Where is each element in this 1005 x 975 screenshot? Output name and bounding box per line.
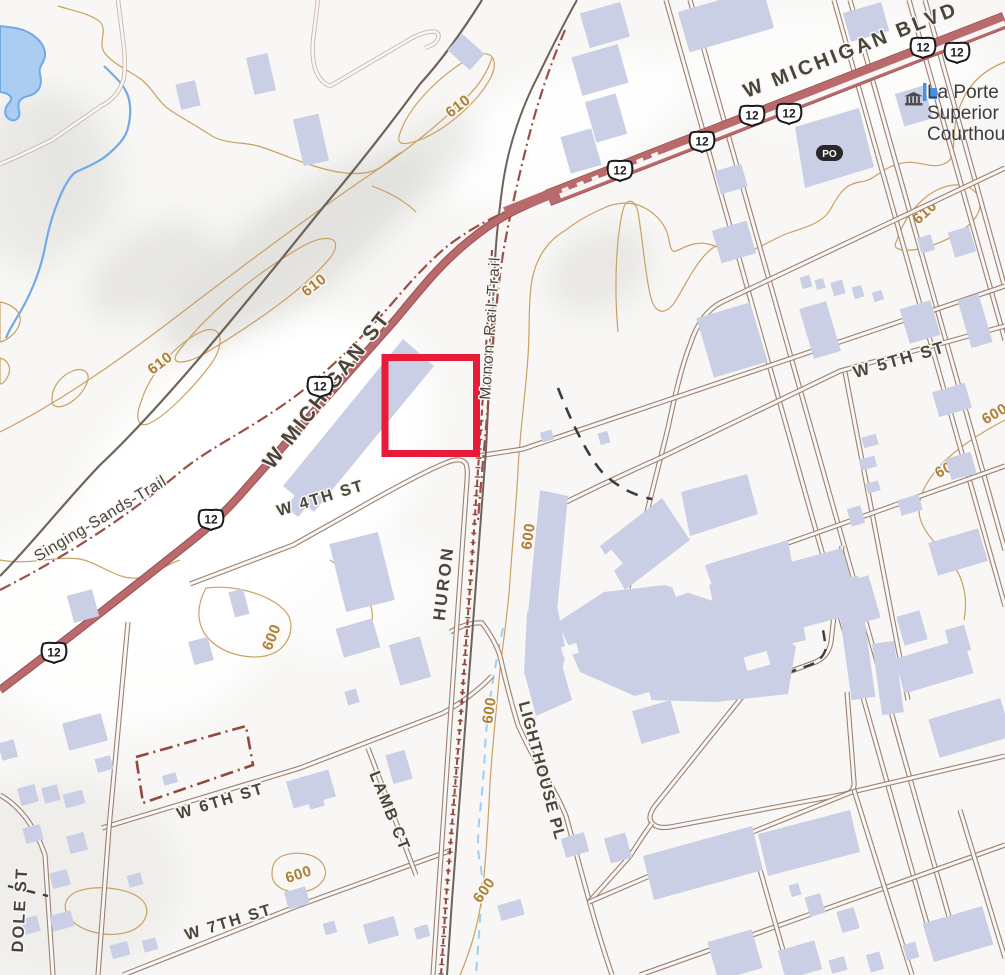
- svg-text:12: 12: [313, 380, 327, 394]
- svg-text:La Porte: La Porte: [927, 82, 999, 103]
- svg-text:12: 12: [916, 41, 930, 55]
- svg-text:Courthou: Courthou: [927, 124, 1005, 145]
- svg-text:Superior: Superior: [927, 103, 999, 124]
- svg-text:12: 12: [204, 513, 218, 527]
- svg-text:12: 12: [47, 646, 61, 660]
- svg-text:12: 12: [745, 109, 759, 123]
- svg-text:PO: PO: [822, 149, 837, 160]
- svg-text:12: 12: [950, 46, 964, 60]
- svg-text:12: 12: [695, 135, 709, 149]
- svg-text:12: 12: [613, 164, 627, 178]
- svg-text:12: 12: [782, 107, 796, 121]
